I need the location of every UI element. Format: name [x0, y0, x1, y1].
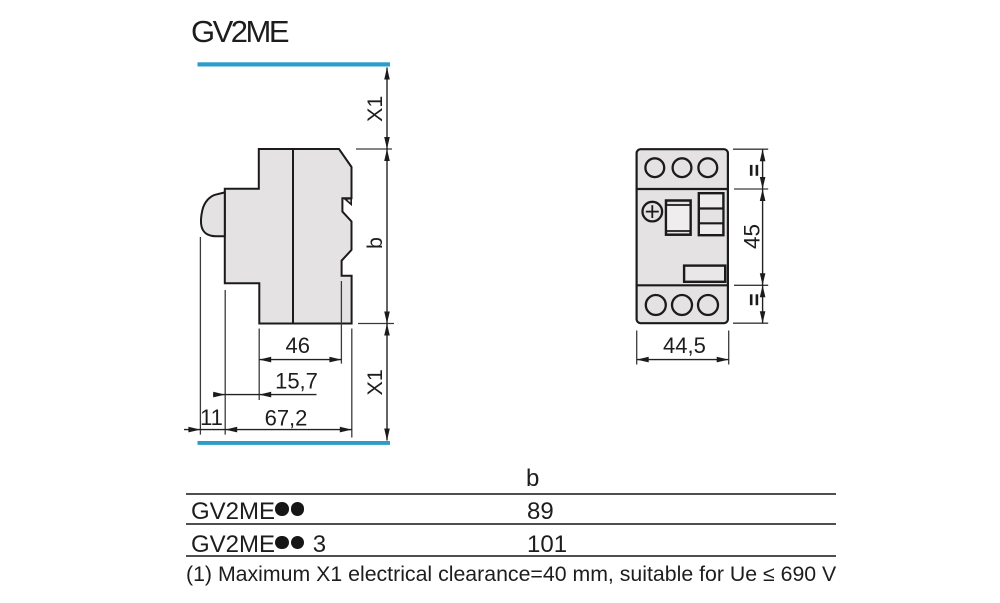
svg-text:11: 11: [200, 405, 223, 430]
svg-text:X1: X1: [363, 96, 387, 122]
svg-text:67,2: 67,2: [265, 406, 308, 431]
svg-text:b: b: [363, 237, 387, 249]
svg-text:44,5: 44,5: [663, 333, 706, 358]
svg-text:45: 45: [740, 224, 765, 249]
svg-text:15,7: 15,7: [275, 369, 318, 394]
svg-text:46: 46: [286, 333, 310, 358]
svg-text:X1: X1: [363, 369, 387, 395]
